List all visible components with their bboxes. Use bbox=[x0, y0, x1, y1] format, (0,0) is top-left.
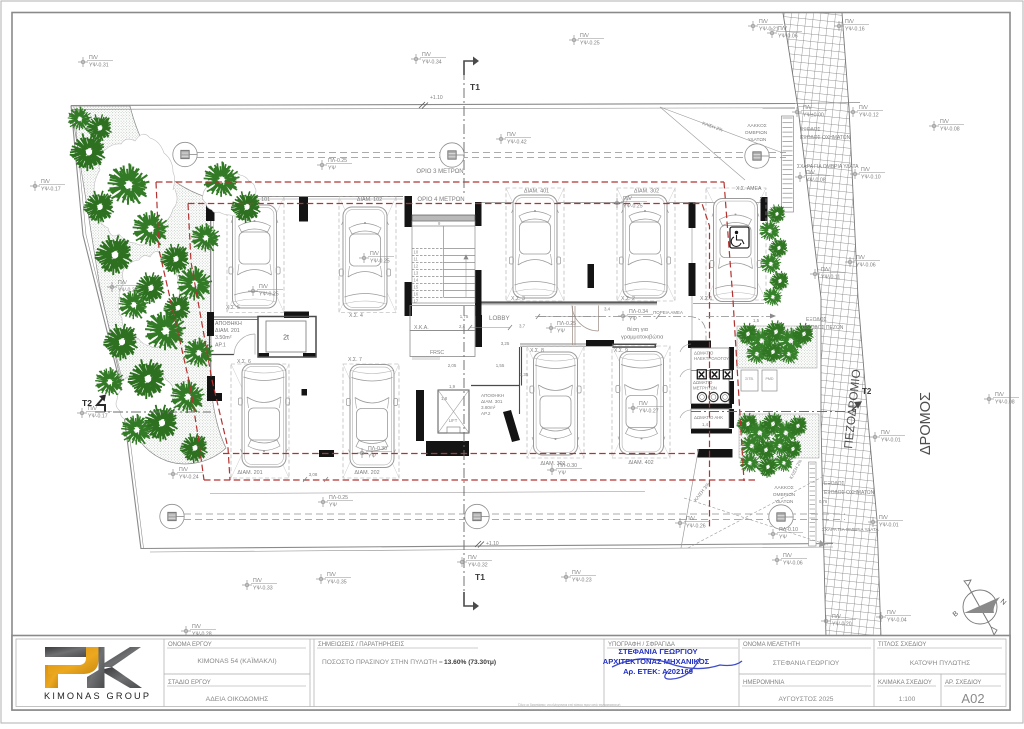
svg-text:ΥΨ-0.06: ΥΨ-0.06 bbox=[778, 34, 798, 40]
svg-text:X.Σ. 9: X.Σ. 9 bbox=[614, 348, 628, 354]
svg-text:ΥΨ-0.25: ΥΨ-0.25 bbox=[370, 259, 390, 265]
svg-text:ΠΛ/: ΠΛ/ bbox=[995, 392, 1004, 398]
svg-text:ΥΨ-0.20: ΥΨ-0.20 bbox=[832, 622, 852, 628]
svg-text:ΜΕΤΡΗΤΩΝ: ΜΕΤΡΗΤΩΝ bbox=[693, 386, 717, 391]
svg-text:16: 16 bbox=[414, 292, 419, 297]
svg-text:ΠΛ/: ΠΛ/ bbox=[859, 105, 868, 111]
svg-text:ΑΥΓΟΥΣΤΟΣ 2025: ΑΥΓΟΥΣΤΟΣ 2025 bbox=[779, 696, 834, 703]
svg-text:ΠΛ/: ΠΛ/ bbox=[821, 267, 830, 273]
svg-text:1,35: 1,35 bbox=[520, 372, 529, 377]
svg-text:ΥΨ-0.01: ΥΨ-0.01 bbox=[879, 523, 899, 529]
svg-text:ΕΞΟΔΟΣ ΠΕΖΩΝ: ΕΞΟΔΟΣ ΠΕΖΩΝ bbox=[804, 325, 844, 331]
svg-text:ΠΛ/: ΠΛ/ bbox=[940, 119, 949, 125]
svg-text:ΔΙΑΜ. 401: ΔΙΑΜ. 401 bbox=[524, 189, 549, 195]
svg-text:1,55: 1,55 bbox=[496, 363, 505, 368]
svg-text:ΠΛ/: ΠΛ/ bbox=[370, 251, 379, 257]
svg-text:14: 14 bbox=[414, 278, 419, 283]
svg-text:KIMONAS 54 (ΚΑΪΜΑΚΛΙ): KIMONAS 54 (ΚΑΪΜΑΚΛΙ) bbox=[197, 657, 276, 665]
svg-text:+1.10: +1.10 bbox=[430, 95, 443, 101]
svg-text:0,76: 0,76 bbox=[819, 499, 828, 504]
svg-text:2t: 2t bbox=[283, 335, 289, 342]
svg-text:ΠΛ-0.10: ΠΛ-0.10 bbox=[779, 527, 798, 533]
svg-text:3,08: 3,08 bbox=[309, 472, 318, 477]
svg-text:Όλες οι διαστάσεις να ελέγχοντ: Όλες οι διαστάσεις να ελέγχονται επί τόπ… bbox=[517, 703, 620, 707]
svg-text:ΟΝΟΜΑ ΜΕΛΕΤΗΤΗ: ΟΝΟΜΑ ΜΕΛΕΤΗΤΗ bbox=[743, 642, 800, 648]
svg-text:3.80m²: 3.80m² bbox=[481, 405, 496, 410]
svg-text:ΥΨ-0.11: ΥΨ-0.11 bbox=[821, 275, 840, 281]
svg-text:ΟΡΙΟ 4 ΜΕΤΡΩΝ: ΟΡΙΟ 4 ΜΕΤΡΩΝ bbox=[417, 197, 464, 203]
svg-text:ΥΨ-0.01: ΥΨ-0.01 bbox=[881, 438, 901, 444]
svg-text:ΠΛ/: ΠΛ/ bbox=[759, 19, 768, 25]
svg-text:ΥΨ: ΥΨ bbox=[779, 535, 787, 541]
svg-text:ΥΨ-0.27: ΥΨ-0.27 bbox=[639, 409, 659, 415]
svg-text:ΠΛ/: ΠΛ/ bbox=[639, 401, 648, 407]
svg-text:ΗΛΕΚΤΡΟΛΟΓΟΥ: ΗΛΕΚΤΡΟΛΟΓΟΥ bbox=[694, 356, 729, 361]
svg-text:2,05: 2,05 bbox=[448, 363, 457, 368]
svg-text:1,5: 1,5 bbox=[753, 318, 760, 323]
svg-text:ΣΗΜΕΙΩΣΕΙΣ / ΠΑΡΑΤΗΡΗΣΕΙΣ: ΣΗΜΕΙΩΣΕΙΣ / ΠΑΡΑΤΗΡΗΣΕΙΣ bbox=[318, 642, 404, 648]
svg-text:ΥΨ-0.04: ΥΨ-0.04 bbox=[887, 618, 907, 624]
svg-text:ΕΞΟΔΟΣ: ΕΞΟΔΟΣ bbox=[800, 127, 821, 133]
svg-text:X.Σ. 7: X.Σ. 7 bbox=[348, 357, 362, 363]
svg-text:X.Σ. 6: X.Σ. 6 bbox=[237, 359, 251, 365]
svg-text:ΥΨ-0.08: ΥΨ-0.08 bbox=[995, 400, 1015, 406]
svg-text:ΑΠΟΘΗΚΗ: ΑΠΟΘΗΚΗ bbox=[481, 393, 504, 398]
svg-text:ΠΛ/: ΠΛ/ bbox=[179, 467, 188, 473]
svg-text:ΔΙΑΜ. 102: ΔΙΑΜ. 102 bbox=[357, 197, 382, 203]
svg-text:3,7: 3,7 bbox=[519, 324, 526, 329]
svg-text:ΠΛ/: ΠΛ/ bbox=[259, 284, 268, 290]
svg-text:ΕΞΟΔΟΣ: ΕΞΟΔΟΣ bbox=[806, 317, 827, 323]
svg-text:1,75: 1,75 bbox=[460, 314, 469, 319]
svg-text:ΠΛ/: ΠΛ/ bbox=[253, 578, 262, 584]
svg-text:ΠΛ/: ΠΛ/ bbox=[41, 179, 50, 185]
svg-text:ΠΛ/: ΠΛ/ bbox=[803, 105, 812, 111]
svg-text:ΥΨ-0.06: ΥΨ-0.06 bbox=[783, 561, 803, 567]
svg-text:1,4: 1,4 bbox=[702, 422, 709, 427]
svg-text:ΥΨ-0.25: ΥΨ-0.25 bbox=[580, 41, 600, 47]
svg-text:ΠΛ/: ΠΛ/ bbox=[881, 430, 890, 436]
svg-text:ΑΠΟΘΗΚΗ: ΑΠΟΘΗΚΗ bbox=[215, 321, 242, 327]
svg-text:ΔΡΟΜΟΣ: ΔΡΟΜΟΣ bbox=[918, 392, 934, 455]
svg-text:ΥΨ-0.23: ΥΨ-0.23 bbox=[572, 578, 592, 584]
svg-text:LIFT: LIFT bbox=[449, 418, 458, 423]
svg-text:ΠΛ/: ΠΛ/ bbox=[686, 516, 695, 522]
svg-text:ΥΨ-0.35: ΥΨ-0.35 bbox=[327, 580, 347, 586]
svg-text:ΠΛ/: ΠΛ/ bbox=[887, 610, 896, 616]
svg-text:ΗΜΕΡΟΜΗΝΙΑ: ΗΜΕΡΟΜΗΝΙΑ bbox=[743, 680, 784, 686]
svg-text:ΥΨ-0.42: ΥΨ-0.42 bbox=[507, 140, 527, 146]
svg-text:ΥΨ: ΥΨ bbox=[329, 503, 337, 509]
svg-text:ΠΛ-0.34: ΠΛ-0.34 bbox=[629, 309, 648, 315]
svg-text:γραμματοκιβώτια: γραμματοκιβώτια bbox=[621, 335, 664, 341]
svg-text:15: 15 bbox=[414, 285, 419, 290]
svg-text:ΚΑΤΟΨΗ ΠΥΛΩΤΗΣ: ΚΑΤΟΨΗ ΠΥΛΩΤΗΣ bbox=[910, 660, 970, 667]
svg-text:3,25: 3,25 bbox=[501, 341, 510, 346]
svg-text:ΔΙΑΜ. 302: ΔΙΑΜ. 302 bbox=[634, 189, 659, 195]
svg-text:ΤΙΤΛΟΣ ΣΧΕΔΙΟΥ: ΤΙΤΛΟΣ ΣΧΕΔΙΟΥ bbox=[878, 642, 926, 648]
svg-text:17: 17 bbox=[414, 299, 419, 304]
svg-text:X.Σ. 4: X.Σ. 4 bbox=[349, 313, 363, 319]
svg-text:X.Σ. 5: X.Σ. 5 bbox=[226, 305, 240, 311]
svg-text:ΥΨ: ΥΨ bbox=[328, 166, 336, 172]
svg-text:ΔΙΑΜ. 202: ΔΙΑΜ. 202 bbox=[354, 470, 379, 476]
svg-text:ΕΞΟΔΟΣ: ΕΞΟΔΟΣ bbox=[824, 481, 845, 487]
svg-text:ΠΛ/: ΠΛ/ bbox=[89, 55, 98, 61]
svg-text:X.Σ. 3: X.Σ. 3 bbox=[511, 296, 525, 302]
svg-text:1,9: 1,9 bbox=[449, 384, 456, 389]
svg-text:ΔΙΑΜ. 402: ΔΙΑΜ. 402 bbox=[628, 460, 653, 466]
svg-text:ΟΜΒΡΙΩΝ: ΟΜΒΡΙΩΝ bbox=[773, 492, 796, 498]
svg-text:ΠΛ/: ΠΛ/ bbox=[879, 515, 888, 521]
svg-text:11: 11 bbox=[414, 257, 419, 262]
svg-text:T2: T2 bbox=[862, 387, 872, 396]
svg-text:ΔΩΜΑΤΙΟ ΑΗΚ: ΔΩΜΑΤΙΟ ΑΗΚ bbox=[694, 415, 723, 420]
svg-text:ΠΛ/: ΠΛ/ bbox=[192, 624, 201, 630]
svg-text:ΠΟΣΟΣΤΟ ΠΡΑΣΙΝΟΥ ΣΤΗΝ ΠΥΛΩΤΗ =: ΠΟΣΟΣΤΟ ΠΡΑΣΙΝΟΥ ΣΤΗΝ ΠΥΛΩΤΗ = bbox=[322, 659, 443, 666]
svg-text:ΠΛ/: ΠΛ/ bbox=[832, 614, 841, 620]
svg-text:ΣΤΑΔΙΟ ΕΡΓΟΥ: ΣΤΑΔΙΟ ΕΡΓΟΥ bbox=[168, 680, 211, 686]
svg-text:ΠΛ/: ΠΛ/ bbox=[118, 280, 127, 286]
svg-text:ΥΨ-0.10: ΥΨ-0.10 bbox=[861, 175, 881, 181]
svg-text:X.Σ. 8: X.Σ. 8 bbox=[530, 348, 544, 354]
svg-text:ΟΜΒΡΙΩΝ: ΟΜΒΡΙΩΝ bbox=[745, 130, 768, 136]
svg-text:ΥΨ: ΥΨ bbox=[557, 329, 565, 335]
svg-text:ΣΧΑΡΑ ΓΙΑ ΟΜΒΡΙΑ ΥΔΑΤΑ: ΣΧΑΡΑ ΓΙΑ ΟΜΒΡΙΑ ΥΔΑΤΑ bbox=[822, 527, 879, 532]
svg-text:ΥΨ: ΥΨ bbox=[629, 317, 637, 323]
svg-text:ΠΛ/: ΠΛ/ bbox=[468, 555, 477, 561]
svg-text:ΥΨ-0.33: ΥΨ-0.33 bbox=[253, 586, 273, 592]
svg-text:ΠΛ/: ΠΛ/ bbox=[845, 19, 854, 25]
svg-text:T1: T1 bbox=[470, 82, 480, 92]
svg-text:13.60% (73.30τμ): 13.60% (73.30τμ) bbox=[444, 659, 496, 666]
svg-text:ΥΨ: ΥΨ bbox=[368, 454, 376, 460]
svg-text:ΠΛ/: ΠΛ/ bbox=[580, 33, 589, 39]
svg-text:ΠΛ/: ΠΛ/ bbox=[572, 570, 581, 576]
svg-text:X.Σ.1: X.Σ.1 bbox=[700, 296, 713, 302]
svg-text:ΠΛ/: ΠΛ/ bbox=[422, 52, 431, 58]
svg-text:ΥΔΑΤΩΝ: ΥΔΑΤΩΝ bbox=[775, 499, 794, 505]
svg-text:12: 12 bbox=[414, 264, 419, 269]
svg-text:ΕΞΟΔΟΣ ΟΧΗΜΑΤΩΝ: ΕΞΟΔΟΣ ΟΧΗΜΑΤΩΝ bbox=[800, 135, 851, 141]
svg-text:ΔΙΑΜ. 301: ΔΙΑΜ. 301 bbox=[481, 399, 503, 404]
svg-text:ΟΝΟΜΑ ΕΡΓΟΥ: ΟΝΟΜΑ ΕΡΓΟΥ bbox=[168, 642, 212, 648]
svg-text:ΣΙΤΒ.: ΣΙΤΒ. bbox=[745, 377, 754, 381]
svg-text:X.Σ. 2: X.Σ. 2 bbox=[621, 296, 635, 302]
svg-text:ΠΛ/: ΠΛ/ bbox=[507, 132, 516, 138]
svg-text:ΠΛ/: ΠΛ/ bbox=[856, 255, 865, 261]
svg-text:10: 10 bbox=[414, 250, 419, 255]
svg-text:X.K.A.: X.K.A. bbox=[414, 325, 429, 331]
svg-text:ΥΨ-0.25: ΥΨ-0.25 bbox=[623, 204, 643, 210]
svg-text:ΑΡ.2: ΑΡ.2 bbox=[481, 411, 491, 416]
svg-text:ΠΛ/: ΠΛ/ bbox=[806, 170, 815, 176]
svg-text:ΥΨ-0.12: ΥΨ-0.12 bbox=[859, 113, 879, 119]
svg-text:ΠΛ/: ΠΛ/ bbox=[623, 196, 632, 202]
svg-text:θέση για: θέση για bbox=[627, 326, 649, 333]
svg-text:ΠΛ/: ΠΛ/ bbox=[327, 572, 336, 578]
svg-text:ΥΨ-0.17: ΥΨ-0.17 bbox=[41, 187, 61, 193]
svg-text:Χ.Σ. ΑΜΕΑ: Χ.Σ. ΑΜΕΑ bbox=[736, 186, 762, 192]
svg-text:ΥΨ-0.31: ΥΨ-0.31 bbox=[89, 63, 109, 69]
svg-text:ΥΨ-0.16: ΥΨ-0.16 bbox=[845, 27, 865, 33]
svg-text:ΠΛ-0.30: ΠΛ-0.30 bbox=[368, 446, 387, 452]
svg-text:2,4: 2,4 bbox=[459, 324, 466, 329]
svg-text:1,8: 1,8 bbox=[441, 396, 448, 401]
svg-text:ΥΔΑΤΩΝ: ΥΔΑΤΩΝ bbox=[748, 137, 767, 143]
svg-text:A02: A02 bbox=[961, 691, 984, 706]
svg-text:ΠΟΡΕΙΑ ΑΜΕΑ: ΠΟΡΕΙΑ ΑΜΕΑ bbox=[653, 310, 683, 315]
svg-text:ΥΨ-0.26: ΥΨ-0.26 bbox=[686, 524, 706, 530]
svg-text:ΠΛ-0.25: ΠΛ-0.25 bbox=[329, 495, 348, 501]
svg-text:ΠΛ/: ΠΛ/ bbox=[778, 26, 787, 32]
svg-text:ΥΨ±0.00: ΥΨ±0.00 bbox=[803, 113, 824, 119]
svg-text:ΥΨ-0.17: ΥΨ-0.17 bbox=[88, 414, 108, 420]
svg-text:ΚΛΙΜΑΚΑ ΣΧΕΔΙΟΥ: ΚΛΙΜΑΚΑ ΣΧΕΔΙΟΥ bbox=[878, 680, 932, 686]
svg-text:ΥΨ-0.08: ΥΨ-0.08 bbox=[940, 127, 960, 133]
svg-text:ΠΛ-0.25: ΠΛ-0.25 bbox=[328, 158, 347, 164]
svg-text:ΥΨ-0.06: ΥΨ-0.06 bbox=[856, 263, 876, 269]
svg-text:ΥΨ-0.24: ΥΨ-0.24 bbox=[179, 475, 199, 481]
svg-text:ΔΩΜΑΤΙΟ: ΔΩΜΑΤΙΟ bbox=[694, 351, 714, 356]
svg-text:KIMONAS GROUP: KIMONAS GROUP bbox=[44, 691, 151, 701]
svg-text:ΑΡ. ΣΧΕΔΙΟΥ: ΑΡ. ΣΧΕΔΙΟΥ bbox=[945, 680, 981, 686]
svg-text:1:100: 1:100 bbox=[899, 696, 916, 703]
svg-text:ΠΛ/: ΠΛ/ bbox=[861, 167, 870, 173]
svg-text:ΥΨ-0.32: ΥΨ-0.32 bbox=[468, 563, 488, 569]
svg-text:ΥΨ: ΥΨ bbox=[558, 471, 566, 477]
svg-text:13: 13 bbox=[414, 271, 419, 276]
svg-text:ΟΡΙΟ 3 ΜΕΤΡΩΝ: ΟΡΙΟ 3 ΜΕΤΡΩΝ bbox=[416, 169, 463, 175]
svg-text:ΛΑΚΚΟΣ: ΛΑΚΚΟΣ bbox=[747, 123, 766, 129]
svg-text:ΔΙΑΜ. 201: ΔΙΑΜ. 201 bbox=[215, 328, 240, 334]
svg-text:ΥΨ-0.08: ΥΨ-0.08 bbox=[806, 178, 826, 184]
svg-text:ΠΛ/: ΠΛ/ bbox=[783, 553, 792, 559]
svg-text:ΑΡ.1: ΑΡ.1 bbox=[215, 343, 226, 349]
svg-text:3.50m²: 3.50m² bbox=[215, 335, 232, 341]
svg-text:ΥΨ-0.25: ΥΨ-0.25 bbox=[259, 292, 279, 298]
svg-text:ΑΔΕΙΑ ΟΙΚΟΔΟΜΗΣ: ΑΔΕΙΑ ΟΙΚΟΔΟΜΗΣ bbox=[206, 696, 269, 703]
svg-text:ΥΨ-0.34: ΥΨ-0.34 bbox=[422, 60, 442, 66]
svg-text:ΣΤΕΦΑΝΙΑ ΓΕΩΡΓΙΟΥ: ΣΤΕΦΑΝΙΑ ΓΕΩΡΓΙΟΥ bbox=[773, 660, 840, 667]
svg-text:ΥΨ-0.26: ΥΨ-0.26 bbox=[118, 288, 138, 294]
svg-text:ΣΤΕΦΑΝΙΑ ΓΕΩΡΓΙΟΥ: ΣΤΕΦΑΝΙΑ ΓΕΩΡΓΙΟΥ bbox=[618, 647, 697, 656]
svg-text:ΠΛ-0.25: ΠΛ-0.25 bbox=[557, 321, 576, 327]
svg-text:PMD: PMD bbox=[766, 377, 774, 381]
svg-text:ΛΑΚΚΟΣ: ΛΑΚΚΟΣ bbox=[774, 485, 793, 491]
svg-text:ΔΙΑΜ. 201: ΔΙΑΜ. 201 bbox=[237, 470, 262, 476]
svg-text:LOBBY: LOBBY bbox=[489, 315, 510, 322]
svg-text:Αρ. ΕΤΕΚ: Α202169: Αρ. ΕΤΕΚ: Α202169 bbox=[623, 667, 693, 676]
svg-text:+1.10: +1.10 bbox=[486, 541, 499, 547]
svg-text:T1: T1 bbox=[475, 572, 485, 582]
svg-text:ΥΨ-0.21: ΥΨ-0.21 bbox=[759, 27, 779, 33]
svg-text:ΕΞΟΔΟΣ ΟΧΗΜΑΤΩΝ: ΕΞΟΔΟΣ ΟΧΗΜΑΤΩΝ bbox=[824, 490, 875, 496]
svg-text:ΠΛ-0.30: ΠΛ-0.30 bbox=[558, 463, 577, 469]
svg-text:FRSC: FRSC bbox=[430, 350, 444, 356]
svg-text:ΠΛ/: ΠΛ/ bbox=[88, 406, 97, 412]
svg-text:3,4: 3,4 bbox=[604, 307, 611, 312]
